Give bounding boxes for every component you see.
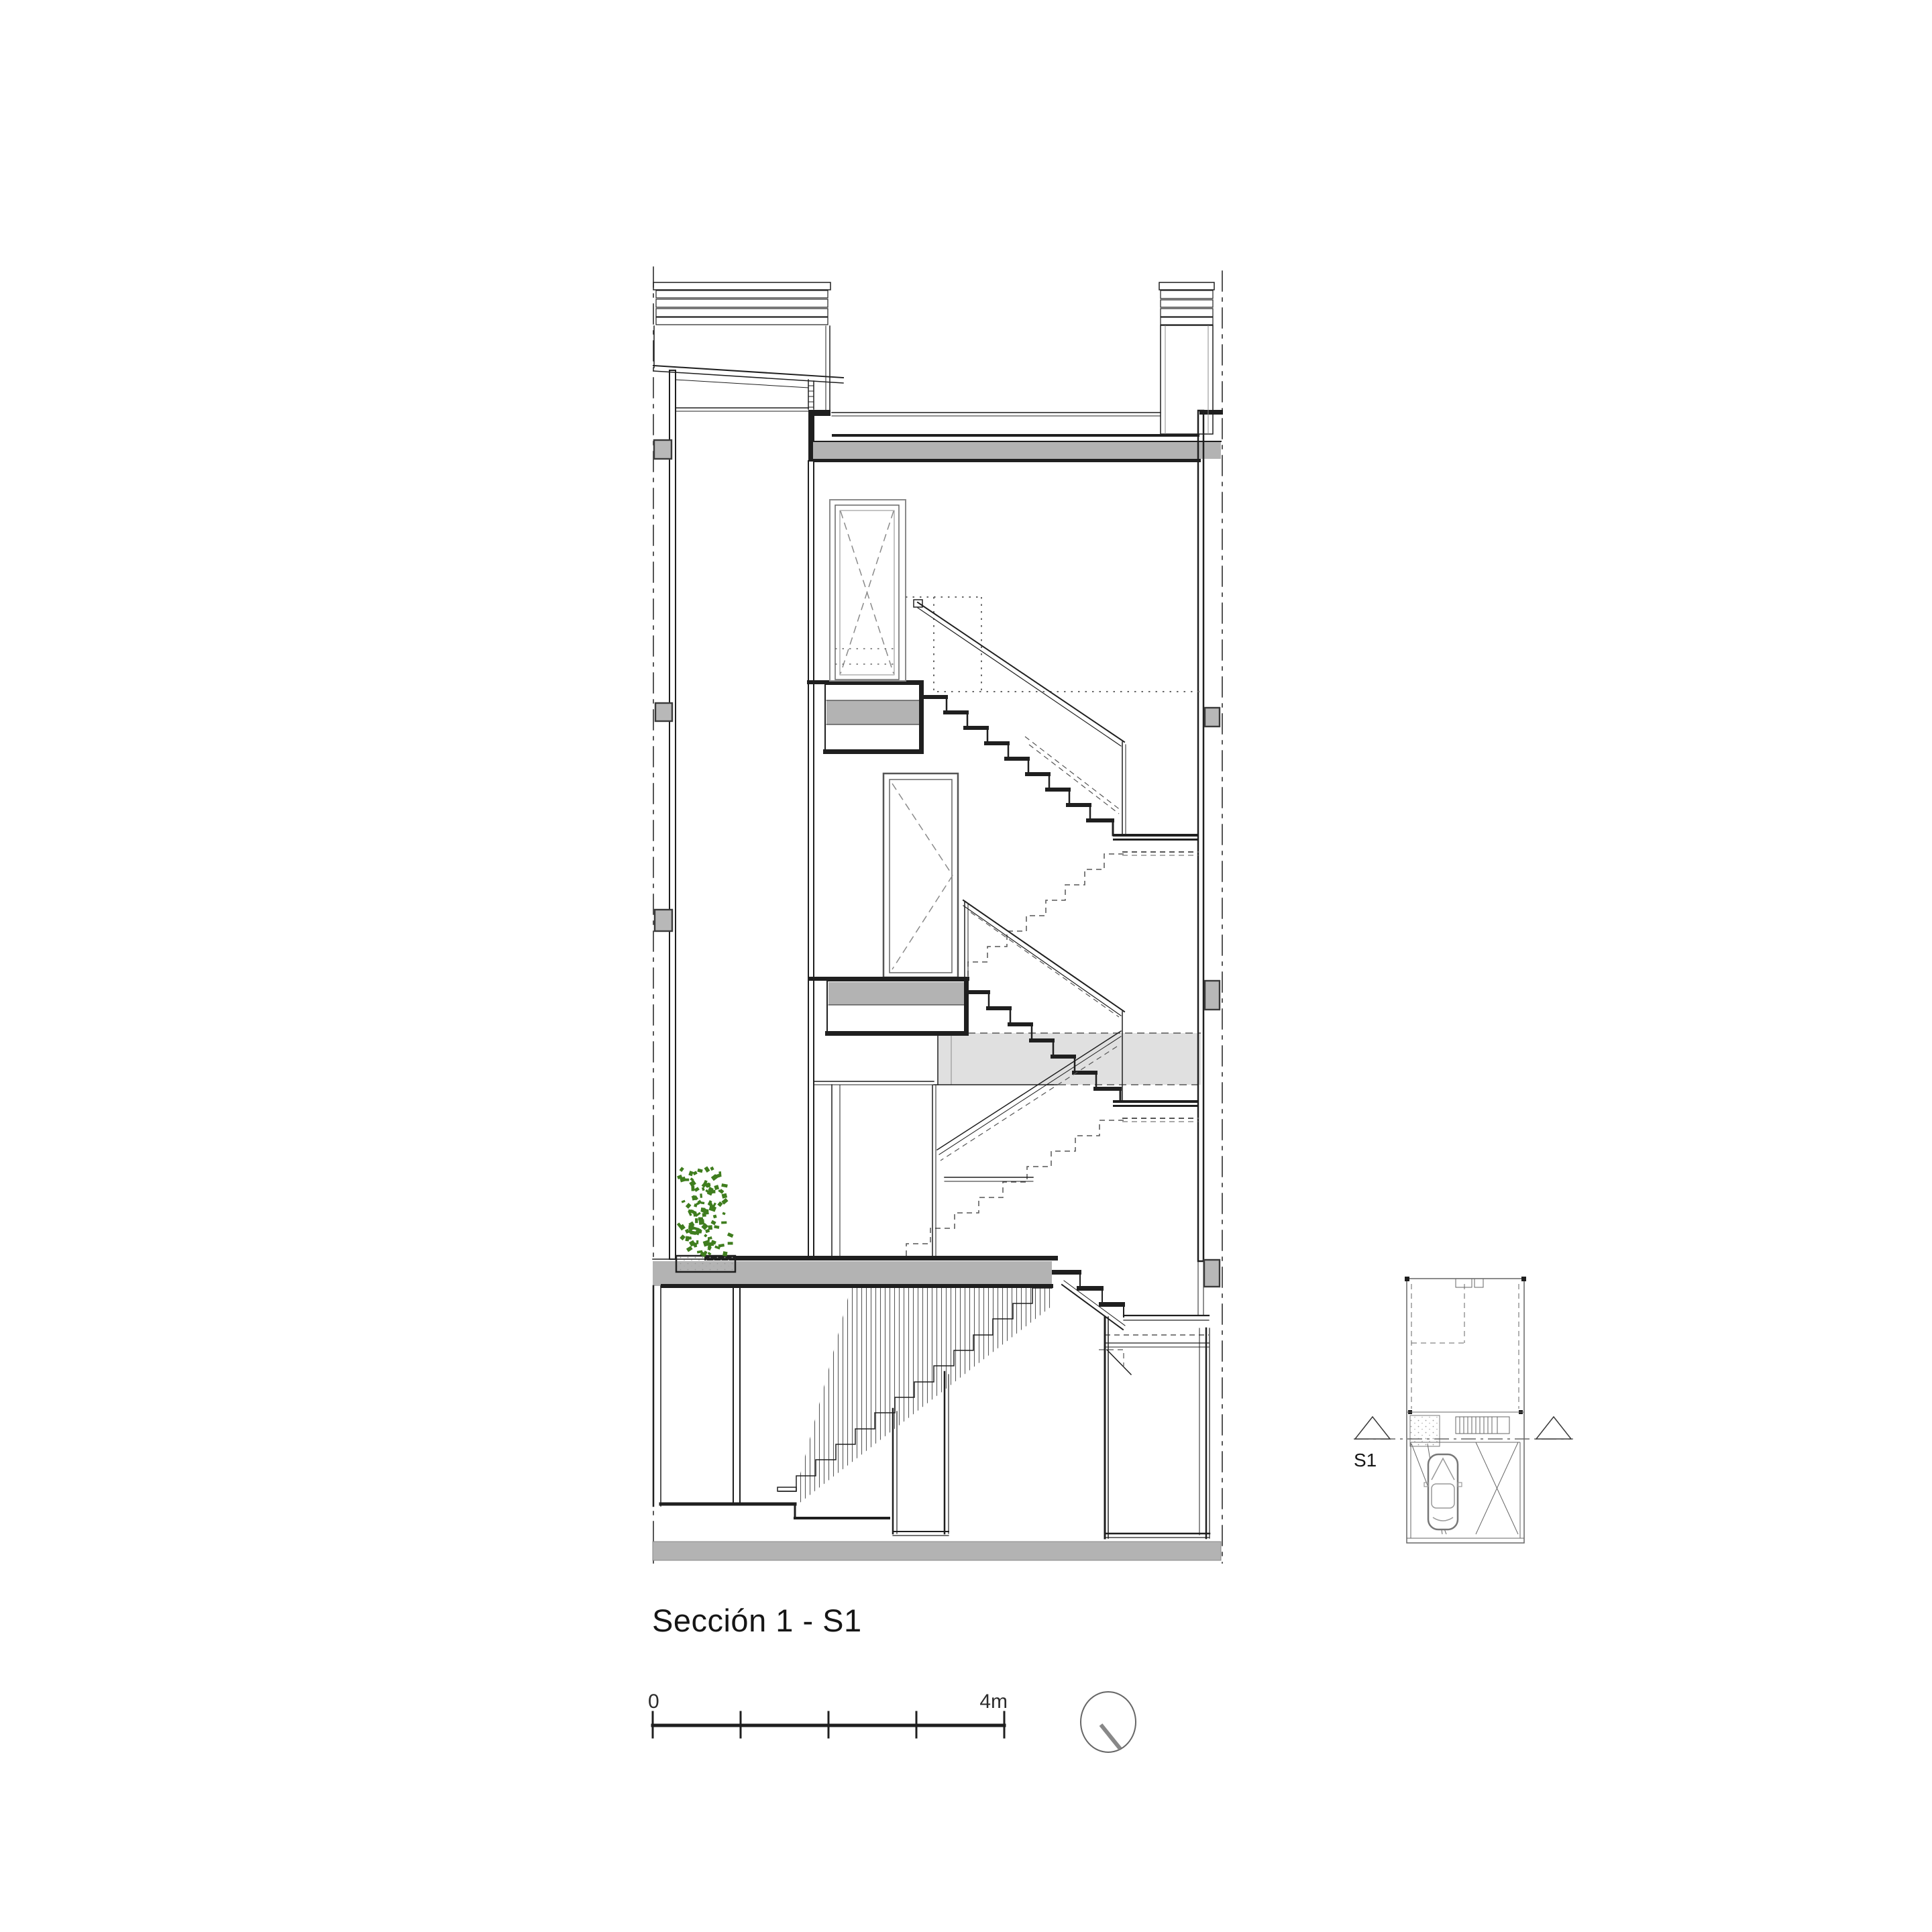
landing-first-floor	[808, 977, 969, 1036]
key-plan-section-label: S1	[1354, 1450, 1377, 1470]
cut-arrow-left	[1355, 1417, 1390, 1439]
neighbor-slab-blocks	[654, 440, 1220, 1287]
drawing-title: Sección 1 - S1	[652, 1603, 862, 1638]
walls	[669, 370, 1203, 1316]
scale-start-label: 0	[648, 1690, 659, 1713]
patio-louver-tower	[653, 282, 830, 411]
key-plan-stair	[1456, 1417, 1509, 1434]
scale-bar: 0 4m	[648, 1690, 1008, 1737]
stair-return-upper-dashed	[968, 854, 1124, 977]
first-floor-gray-zone	[934, 1033, 1201, 1085]
basement	[653, 1286, 1210, 1538]
section-drawing-svg: S1 Sección 1 - S1	[0, 0, 1932, 1932]
entry-steps	[1052, 1270, 1125, 1330]
key-plan-garage	[1407, 1442, 1524, 1543]
planter-box	[676, 1256, 735, 1272]
foundation-strip	[653, 1542, 1221, 1560]
cut-arrow-right	[1536, 1417, 1571, 1439]
stair-balustrade-hatch	[798, 1288, 1052, 1504]
landing-top-floor	[807, 680, 924, 754]
plant-foliage	[677, 1166, 734, 1257]
window-first-floor	[883, 773, 958, 977]
window-top-floor	[830, 500, 906, 681]
ground-floor-interior	[814, 1081, 1033, 1259]
stair-flight-upper	[922, 695, 1199, 855]
skylight-dotted-projection	[906, 597, 1199, 692]
scale-end-label: 4m	[979, 1690, 1008, 1713]
patio-canopy	[653, 366, 843, 411]
north-indicator-icon	[1081, 1692, 1136, 1752]
car-icon	[1424, 1454, 1462, 1529]
railing-upper-flight	[914, 600, 1126, 834]
architectural-sheet: S1 Sección 1 - S1	[0, 0, 1932, 1932]
key-plan: S1	[1354, 1277, 1573, 1543]
title-block: Sección 1 - S1 0 4m	[648, 1603, 1136, 1752]
